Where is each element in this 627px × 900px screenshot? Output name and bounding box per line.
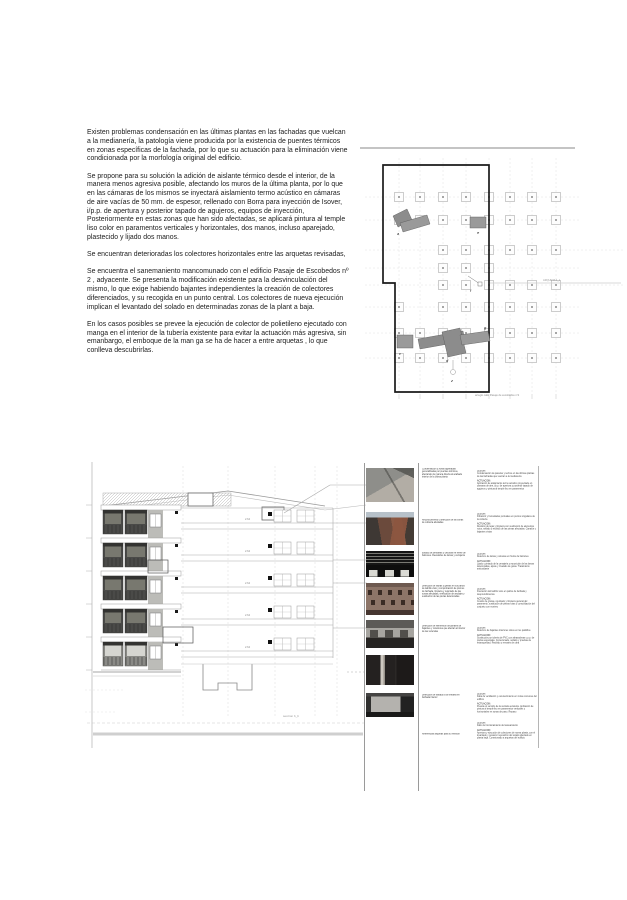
actuacion-text: Revisión de tejas y limpieza con sustitu…	[477, 525, 537, 533]
roof-callout-box	[188, 493, 213, 506]
annotation-text: Detección de traslado a la ventana en fa…	[422, 694, 466, 699]
marker-z: z	[450, 378, 453, 383]
marker-e: e	[477, 230, 480, 235]
lesion-text: Fallo de funcionamiento del saneamiento	[477, 725, 537, 728]
plan-leader-label: ARQUETA 1_1	[543, 278, 561, 282]
floor-dims: 2.64 2.64 2.64 2.64 2.64	[245, 517, 251, 649]
plan-caption: arreglo calle Pasaje de escobedos nº2	[475, 393, 520, 397]
photo-interior-ceiling	[366, 468, 414, 502]
marker-z-circle	[451, 370, 456, 375]
photo-band-left-rule	[364, 463, 365, 791]
highlight-c	[397, 335, 413, 348]
annotation-right-5: LESION: Deterioro de bajantes interiores…	[477, 627, 537, 683]
lesion-text: Falta de ventilación y oscurecimiento en…	[477, 696, 537, 701]
level-ticks	[86, 505, 92, 670]
photo-leader-lines	[284, 485, 367, 672]
photo-aerial-roofs	[366, 512, 414, 545]
annotation-left-7: Referencias arquetas para su revisión	[422, 733, 466, 741]
paragraph-colectores: Se encuentran deterioradas los colectore…	[87, 251, 349, 260]
marker-f: f	[470, 288, 472, 293]
actuacion-text: Aplicación de aislamiento termo acústico…	[477, 482, 537, 490]
photo-interior-room	[366, 620, 414, 648]
annotation-left-4: Detección de fisuras y grietas en los pa…	[422, 585, 466, 626]
annotation-left-6: Detección de traslado a la ventana en fa…	[422, 694, 466, 711]
lesion-text: Deterioro de bajantes interiores vistos …	[477, 630, 537, 633]
svg-text:2.64: 2.64	[245, 549, 251, 553]
photo-brick-facade	[366, 583, 414, 615]
annotation-left-1: Condensación y zonas agrietadas generali…	[422, 468, 466, 501]
actuacion-text: Sustitución por tubería de PVC con abraz…	[477, 637, 537, 645]
annotation-left-2: Reconocimiento y detección de las zonas …	[422, 519, 466, 536]
annotation-text: Condensación y zonas agrietadas generali…	[422, 468, 466, 479]
actuacion-text: Puesta en servicio de la ventana existen…	[477, 705, 537, 713]
annotation-text: Referencias arquetas para su revisión	[422, 733, 466, 736]
annotation-band-right-rule	[538, 466, 539, 748]
lesion-text: Fisuración del ladrillo visto en paños d…	[477, 591, 537, 596]
plan-highlight-areas	[393, 209, 490, 375]
highlight-f-box	[478, 282, 482, 286]
marker-a: a	[397, 231, 400, 236]
plan-column-grid	[365, 158, 623, 399]
section-label: seccion b_b	[283, 714, 299, 718]
lesion-text: Condensación de paredes y techos en las …	[477, 473, 537, 478]
actuacion-text: Lijado y pintado de la cerrajería y repo…	[477, 563, 537, 571]
lesion-text: Filtración y humedades puntuales en punt…	[477, 516, 537, 521]
annotation-text: Reconocimiento y detección de las zonas …	[422, 519, 466, 524]
paragraph-polietileno: En los casos posibles se prevee la ejecu…	[87, 321, 349, 356]
annotation-text: Detección de elementos funcionales de ba…	[422, 625, 466, 633]
svg-text:2.64: 2.64	[245, 517, 251, 521]
paragraph-saneamiento: Se encuentra el sanemaniento mancomunado…	[87, 268, 349, 312]
memoria-text: Existen problemas condensación en las úl…	[87, 129, 349, 364]
paragraph-condensacion: Existen problemas condensación en las úl…	[87, 129, 349, 164]
facade-elevation	[101, 505, 181, 670]
report-page: { "document": { "paragraphs": [ "Existen…	[0, 0, 627, 900]
photo-louvre-facade	[366, 551, 414, 577]
svg-text:2.64: 2.64	[245, 613, 251, 617]
svg-text:2.64: 2.64	[245, 581, 251, 585]
elevation-section-drawing: 2.64 2.64 2.64 2.64 2.64 seccion b_b	[85, 460, 367, 760]
marker-c: c	[399, 351, 401, 356]
actuacion-text: Apertura y ejecución de colectores de nu…	[477, 732, 537, 740]
annotation-left-3: Estado de persianas y celosías en frente…	[422, 552, 466, 569]
louvre-strip	[366, 551, 414, 565]
paragraph-solucion: Se propone para su solución la adición d…	[87, 173, 349, 243]
highlight-e	[470, 217, 486, 228]
annotation-left-5: Detección de elementos funcionales de ba…	[422, 625, 466, 650]
louvre-windows	[366, 565, 414, 577]
photo-band-right-rule	[418, 463, 419, 791]
annotation-right-7: LESION: Fallo de funcionamiento del sane…	[477, 722, 537, 778]
actuacion-text: Cosido de grietas, rejuntado y limpieza …	[477, 600, 537, 608]
annotation-text: Estado de persianas y celosías en frente…	[422, 552, 466, 557]
lesion-text: Deterioro de lamas y celosías en frente …	[477, 556, 537, 559]
ground-floor-outline	[203, 664, 252, 690]
photo-dark-doorway	[366, 655, 414, 685]
photo-garage-wall	[366, 693, 414, 717]
svg-text:2.64: 2.64	[245, 645, 251, 649]
annotation-text: Detección de fisuras y grietas en los pa…	[422, 585, 466, 598]
marker-d: d	[446, 358, 449, 363]
floor-plan-drawing: ARQUETA 1_1 a e f c d g z arreglo calle …	[353, 142, 627, 408]
